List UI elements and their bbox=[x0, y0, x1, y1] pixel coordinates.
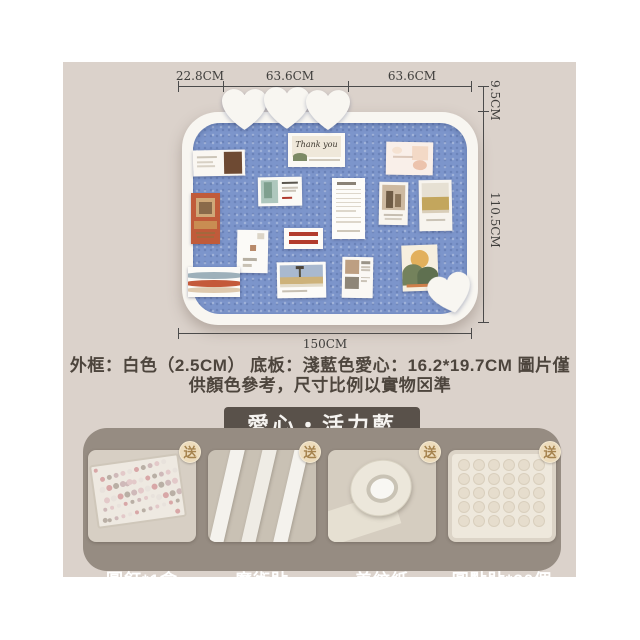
round-sticker bbox=[473, 501, 485, 513]
card-detail bbox=[309, 159, 341, 161]
round-sticker bbox=[458, 459, 470, 471]
dim-line-top bbox=[178, 86, 471, 87]
push-pin bbox=[165, 479, 172, 486]
card-detail bbox=[422, 209, 450, 213]
card-detail bbox=[337, 230, 360, 232]
card-detail bbox=[336, 202, 361, 203]
push-pin bbox=[156, 494, 163, 501]
card-detail bbox=[243, 264, 252, 266]
card-detail bbox=[386, 191, 394, 207]
push-pin bbox=[126, 479, 133, 486]
round-sticker bbox=[473, 515, 485, 527]
card-detail bbox=[426, 219, 446, 222]
push-pin bbox=[176, 488, 183, 495]
push-pin bbox=[110, 495, 117, 502]
push-pin bbox=[154, 461, 160, 467]
card-detail bbox=[361, 266, 370, 268]
round-sticker bbox=[503, 459, 515, 471]
card-detail bbox=[196, 232, 216, 235]
push-pin bbox=[140, 465, 146, 471]
accessory-label-strips: 魔術貼 bbox=[200, 566, 324, 591]
card-detail bbox=[345, 260, 359, 274]
round-sticker bbox=[503, 487, 515, 499]
card-detail bbox=[412, 146, 428, 161]
round-sticker bbox=[533, 487, 545, 499]
card-detail bbox=[280, 284, 323, 287]
push-pin bbox=[175, 508, 181, 514]
round-sticker bbox=[473, 473, 485, 485]
velcro-strip bbox=[240, 450, 279, 542]
round-sticker bbox=[488, 515, 500, 527]
dim-tick bbox=[471, 81, 472, 92]
card-detail bbox=[336, 189, 361, 190]
dim-label-22-8cm: 22.8CM bbox=[170, 69, 230, 83]
pinned-card bbox=[237, 230, 269, 274]
push-pin bbox=[162, 502, 167, 507]
pinned-card bbox=[191, 193, 220, 244]
round-sticker bbox=[503, 515, 515, 527]
card-detail bbox=[361, 261, 370, 264]
dim-label-9-5cm: 9.5CM bbox=[488, 80, 502, 121]
card-detail bbox=[413, 161, 427, 171]
round-sticker bbox=[518, 487, 530, 499]
round-sticker bbox=[503, 473, 515, 485]
push-pin bbox=[147, 463, 153, 469]
round-sticker bbox=[533, 501, 545, 513]
push-pin bbox=[110, 506, 115, 511]
accessory-tile-dots: 送 圓點貼*30個 bbox=[448, 450, 556, 542]
push-pin bbox=[161, 459, 167, 465]
dot-stickers-photo bbox=[448, 450, 556, 542]
gift-badge: 送 bbox=[299, 441, 321, 463]
dim-label-110-5cm: 110.5CM bbox=[488, 192, 502, 248]
pinned-card: Thank you bbox=[288, 133, 345, 167]
dim-line-bottom bbox=[178, 333, 471, 334]
pinned-card bbox=[386, 142, 434, 176]
accessory-label-dots: 圓點貼*30個 bbox=[440, 566, 564, 591]
push-pin bbox=[123, 502, 128, 507]
push-pin bbox=[103, 507, 108, 512]
card-detail bbox=[188, 272, 240, 279]
round-sticker bbox=[458, 501, 470, 513]
description-line-2: 供顏色參考，尺寸比例以實物⊠準 bbox=[64, 376, 576, 396]
pinned-card bbox=[332, 178, 365, 239]
card-detail bbox=[188, 287, 240, 293]
pinned-card bbox=[277, 262, 327, 299]
card-detail bbox=[224, 152, 242, 174]
card-detail bbox=[361, 277, 370, 279]
card-detail bbox=[361, 280, 367, 282]
push-pin bbox=[159, 471, 165, 477]
round-sticker bbox=[458, 515, 470, 527]
round-sticker bbox=[488, 501, 500, 513]
pinned-card bbox=[379, 182, 409, 225]
pin-box bbox=[89, 453, 187, 529]
push-pin bbox=[145, 475, 151, 481]
push-pin bbox=[138, 487, 145, 494]
round-sticker bbox=[518, 459, 530, 471]
accessory-tile-pins: 送 圖釘*1盒 bbox=[88, 450, 196, 542]
product-infographic: 22.8CM 63.6CM 63.6CM 9.5CM 110.5CM 150CM… bbox=[0, 0, 640, 640]
round-sticker bbox=[518, 501, 530, 513]
gift-badge: 送 bbox=[539, 441, 561, 463]
strips-photo bbox=[208, 450, 316, 542]
push-pin bbox=[106, 475, 112, 481]
heart-icon bbox=[306, 90, 350, 130]
velcro-strip bbox=[272, 450, 311, 542]
push-pin bbox=[114, 516, 119, 521]
push-pin bbox=[165, 469, 171, 475]
heart-icon bbox=[264, 87, 310, 129]
push-pin bbox=[141, 508, 146, 513]
card-detail bbox=[336, 217, 361, 218]
push-pin bbox=[144, 496, 149, 501]
card-detail bbox=[383, 214, 403, 216]
card-detail bbox=[336, 206, 361, 207]
card-detail bbox=[243, 258, 257, 261]
push-pin bbox=[144, 485, 151, 492]
accessory-label-tape: 美紋紙 bbox=[320, 566, 444, 591]
push-pin bbox=[169, 490, 176, 497]
card-detail bbox=[197, 156, 217, 158]
accessory-label-pins: 圖釘*1盒 bbox=[80, 566, 204, 591]
push-pin bbox=[100, 476, 106, 482]
description-line-1: 外框：白色（2.5CM） 底板：淺藍色愛心：16.2*19.7CM 圖片僅 bbox=[64, 356, 576, 376]
push-pin bbox=[94, 468, 99, 473]
push-pin bbox=[120, 471, 126, 477]
card-detail bbox=[264, 182, 272, 198]
push-pin bbox=[169, 500, 174, 505]
tape-photo bbox=[328, 450, 436, 542]
push-pin bbox=[131, 489, 138, 496]
card-detail bbox=[188, 280, 240, 287]
card-detail bbox=[337, 182, 356, 185]
gift-badge: 送 bbox=[179, 441, 201, 463]
velcro-strip bbox=[208, 450, 246, 542]
push-pin bbox=[127, 469, 133, 475]
card-detail bbox=[393, 156, 414, 159]
card-detail bbox=[197, 236, 213, 238]
card-detail bbox=[199, 202, 213, 214]
accessory-tile-tape: 送 美紋紙 bbox=[328, 450, 436, 542]
round-sticker bbox=[458, 473, 470, 485]
accessory-tile-strips: 送 魔術貼 bbox=[208, 450, 316, 542]
round-sticker bbox=[533, 473, 545, 485]
push-pin bbox=[148, 506, 153, 511]
push-pin bbox=[106, 485, 113, 492]
pinned-card bbox=[342, 257, 374, 299]
pinned-card bbox=[188, 267, 240, 297]
push-pin bbox=[137, 498, 142, 503]
push-pin bbox=[117, 493, 124, 500]
push-pin bbox=[108, 518, 113, 523]
round-sticker bbox=[473, 487, 485, 499]
push-pin bbox=[113, 473, 119, 479]
pinned-card bbox=[258, 177, 302, 207]
push-pin bbox=[172, 477, 179, 484]
dim-line-right bbox=[483, 86, 484, 323]
dim-label-150cm: 150CM bbox=[295, 337, 355, 351]
dot-sticker-sheet bbox=[452, 454, 552, 538]
push-pin bbox=[124, 491, 131, 498]
push-pin bbox=[151, 494, 156, 499]
card-detail bbox=[289, 240, 319, 245]
card-detail bbox=[392, 146, 402, 153]
push-pin bbox=[155, 504, 160, 509]
round-sticker bbox=[473, 459, 485, 471]
card-detail bbox=[282, 197, 293, 199]
card-detail bbox=[282, 187, 299, 189]
push-pin bbox=[130, 500, 135, 505]
round-sticker bbox=[518, 515, 530, 527]
thank-you-text: Thank you bbox=[288, 140, 345, 149]
gift-badge: 送 bbox=[419, 441, 441, 463]
push-pin bbox=[104, 497, 111, 504]
card-detail bbox=[293, 153, 308, 160]
card-detail bbox=[336, 221, 361, 222]
card-detail bbox=[197, 165, 215, 167]
card-detail bbox=[250, 245, 256, 251]
card-detail bbox=[194, 221, 216, 229]
push-pin bbox=[151, 483, 158, 490]
push-pin bbox=[128, 512, 133, 517]
heart-icon bbox=[222, 89, 267, 130]
round-sticker bbox=[533, 515, 545, 527]
push-pin bbox=[99, 487, 106, 494]
push-pin bbox=[138, 477, 144, 483]
card-detail bbox=[289, 232, 319, 237]
pinned-card bbox=[419, 180, 453, 232]
dim-tick bbox=[478, 322, 489, 323]
card-detail bbox=[282, 290, 308, 293]
card-detail bbox=[282, 190, 296, 192]
pinned-card bbox=[193, 150, 245, 177]
round-sticker bbox=[488, 459, 500, 471]
tape-roll-hole bbox=[363, 470, 402, 507]
card-detail bbox=[345, 276, 359, 289]
card-detail bbox=[197, 161, 213, 163]
card-detail bbox=[336, 193, 361, 194]
dim-label-63-6cm-left: 63.6CM bbox=[260, 69, 320, 83]
push-pin bbox=[117, 504, 122, 509]
pinned-card bbox=[284, 228, 323, 249]
dim-tick bbox=[471, 328, 472, 339]
card-detail bbox=[282, 181, 298, 184]
push-pin bbox=[102, 518, 108, 524]
round-sticker bbox=[488, 473, 500, 485]
push-pin bbox=[158, 481, 165, 488]
card-detail bbox=[295, 266, 304, 270]
dim-label-63-6cm-right: 63.6CM bbox=[382, 69, 442, 83]
push-pin bbox=[121, 514, 126, 519]
round-sticker bbox=[503, 501, 515, 513]
push-pin bbox=[135, 510, 140, 515]
dim-tick bbox=[178, 328, 179, 339]
card-detail bbox=[385, 218, 401, 220]
card-detail bbox=[258, 234, 265, 240]
push-pin bbox=[113, 483, 120, 490]
accessories-panel: 送 圖釘*1盒 送 魔術貼 送 美紋紙 bbox=[83, 428, 561, 571]
pins-photo bbox=[88, 450, 196, 542]
push-pin bbox=[119, 481, 126, 488]
push-pin bbox=[162, 492, 169, 499]
card-detail bbox=[336, 210, 356, 211]
card-detail bbox=[361, 269, 370, 271]
product-description: 外框：白色（2.5CM） 底板：淺藍色愛心：16.2*19.7CM 圖片僅 供顏… bbox=[64, 356, 576, 396]
round-sticker bbox=[518, 473, 530, 485]
push-pin bbox=[175, 498, 180, 503]
card-detail bbox=[336, 198, 361, 199]
push-pin bbox=[152, 473, 158, 479]
push-pin bbox=[134, 467, 140, 473]
push-pin bbox=[172, 467, 178, 473]
card-detail bbox=[395, 194, 402, 207]
round-sticker bbox=[488, 487, 500, 499]
round-sticker bbox=[458, 487, 470, 499]
